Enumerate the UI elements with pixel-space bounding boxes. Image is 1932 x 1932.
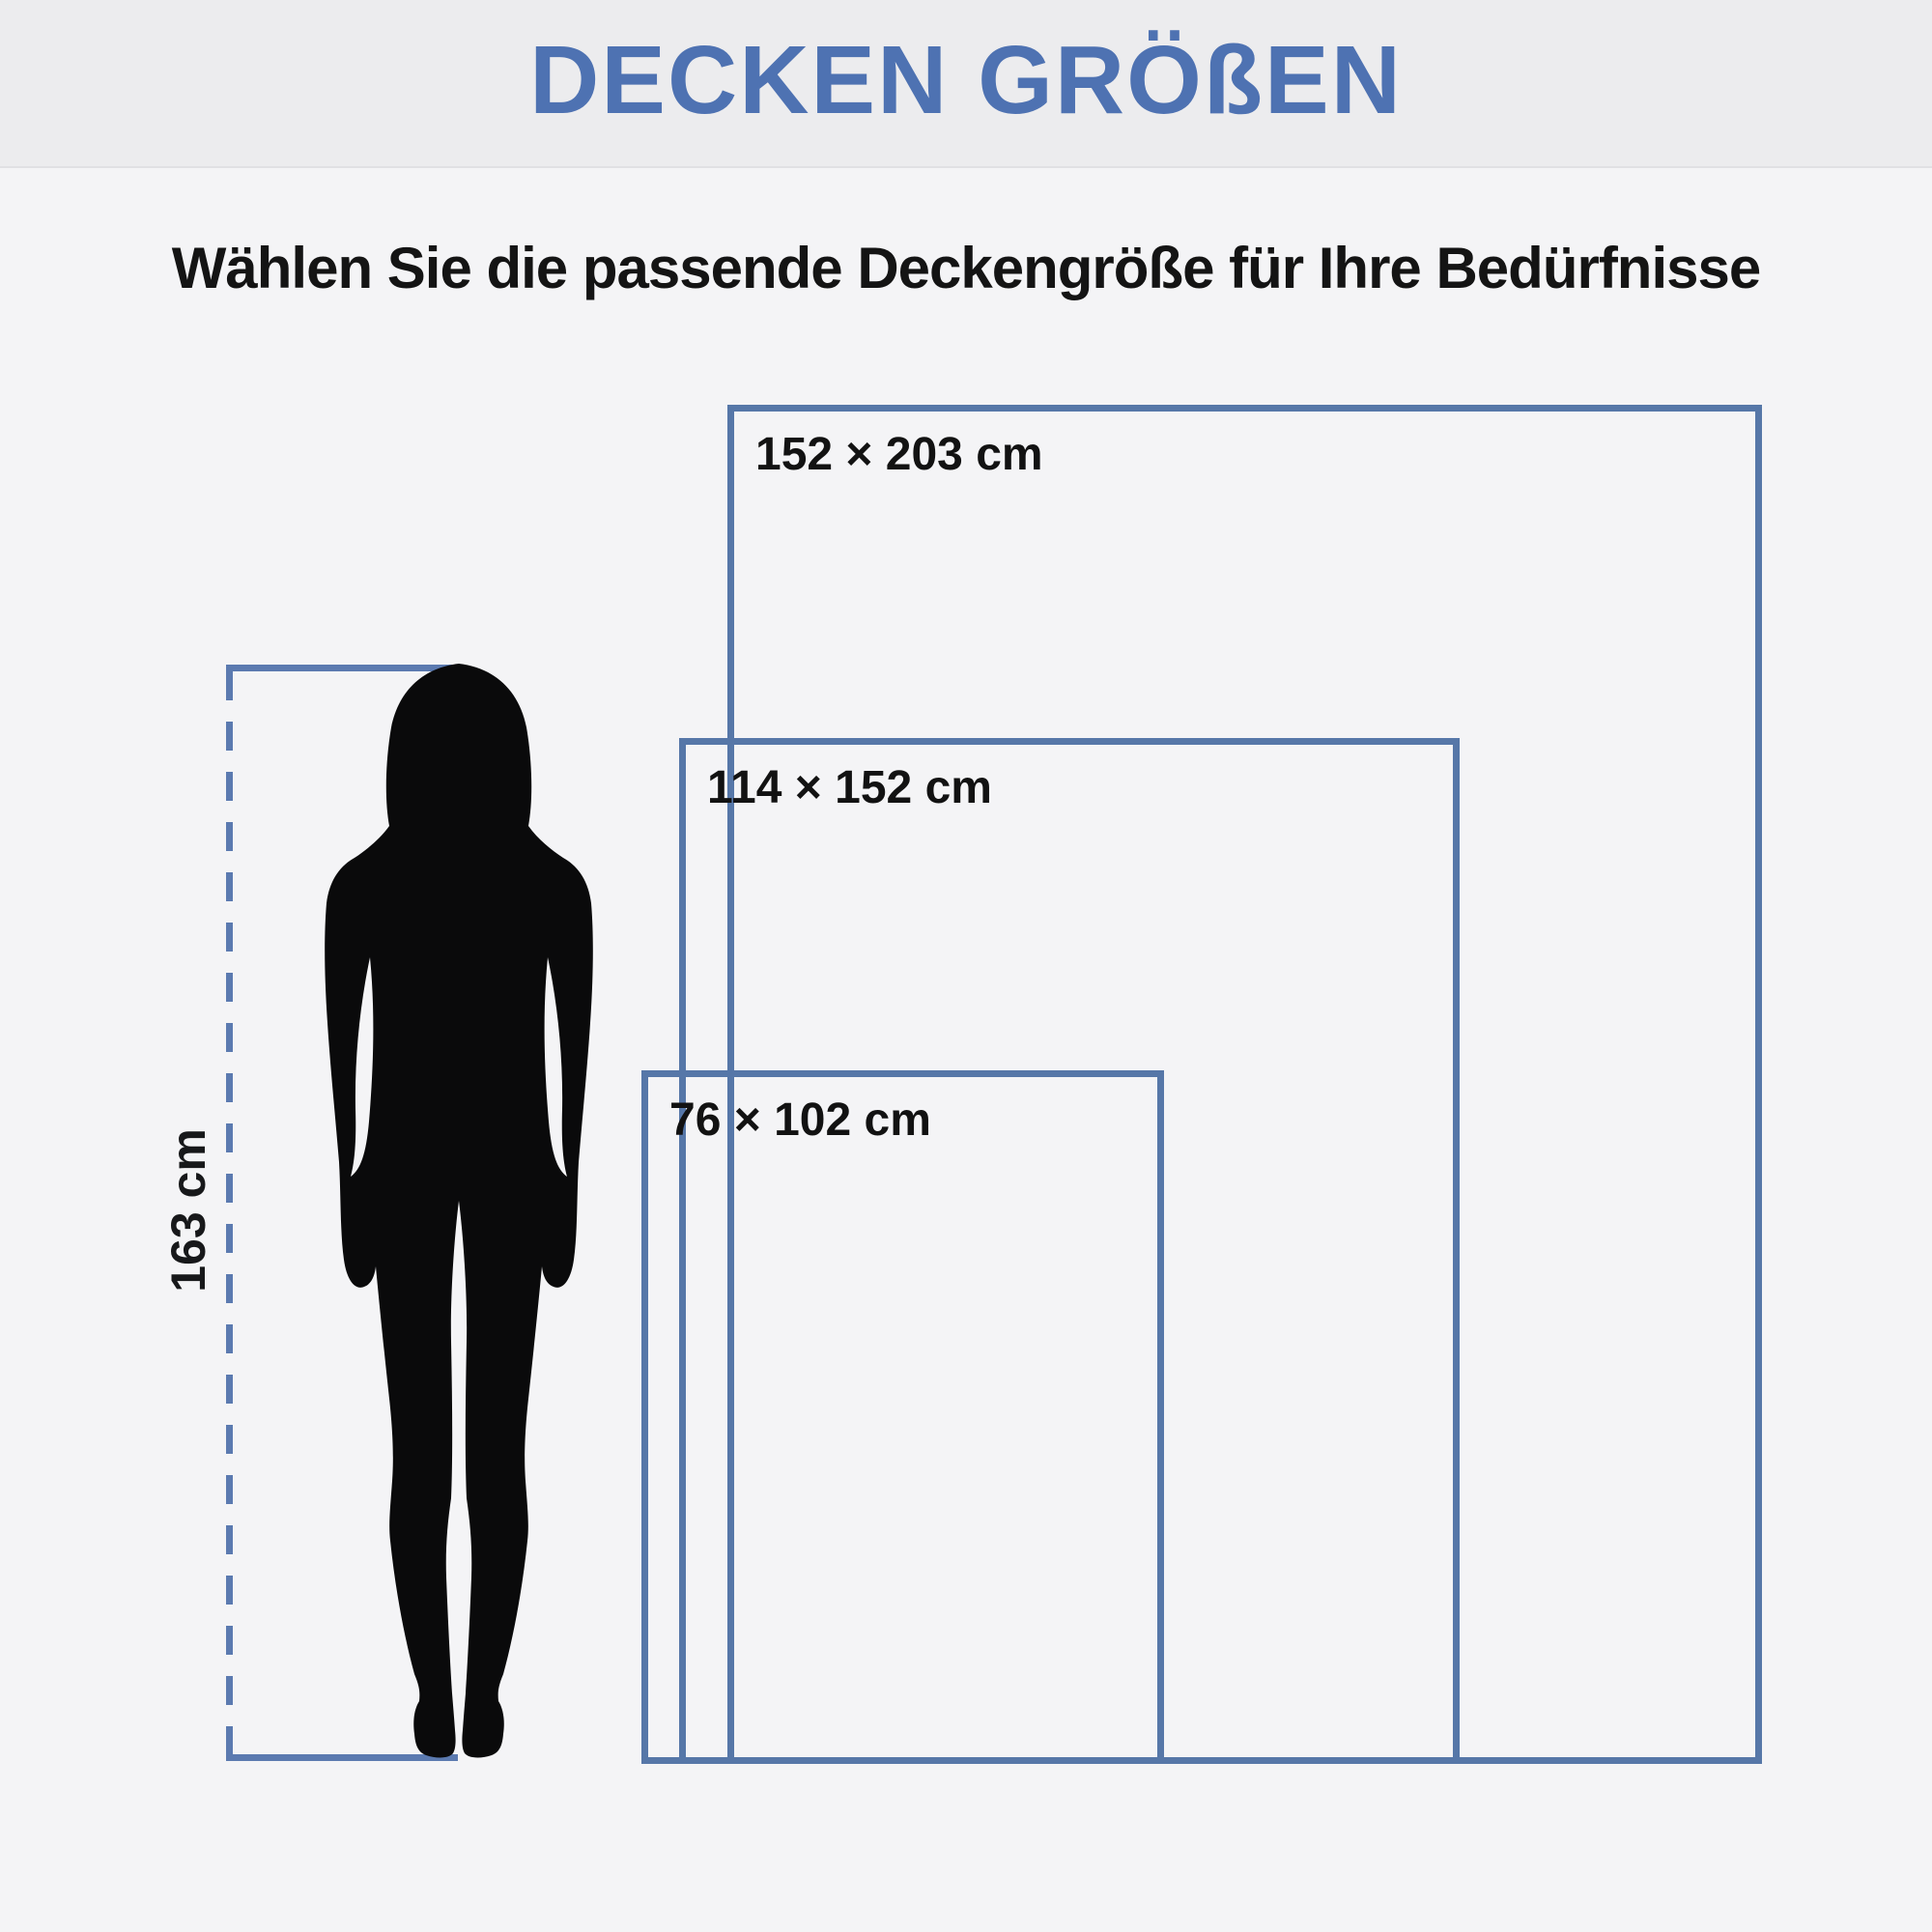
person-height-label: 163 cm xyxy=(160,1128,216,1293)
measure-line-dashed-vertical xyxy=(226,671,233,1754)
size-rect-small: 76 × 102 cm xyxy=(641,1070,1164,1764)
woman-silhouette-icon xyxy=(314,660,604,1761)
header-band: DECKEN GRÖßEN xyxy=(0,0,1932,168)
subtitle: Wählen Sie die passende Deckengröße für … xyxy=(0,232,1932,304)
page-title: DECKEN GRÖßEN xyxy=(529,32,1403,134)
infographic-canvas: DECKEN GRÖßEN Wählen Sie die passende De… xyxy=(0,0,1932,1932)
size-label-medium: 114 × 152 cm xyxy=(686,745,1453,814)
size-label-large: 152 × 203 cm xyxy=(734,412,1755,481)
size-label-small: 76 × 102 cm xyxy=(648,1077,1157,1147)
